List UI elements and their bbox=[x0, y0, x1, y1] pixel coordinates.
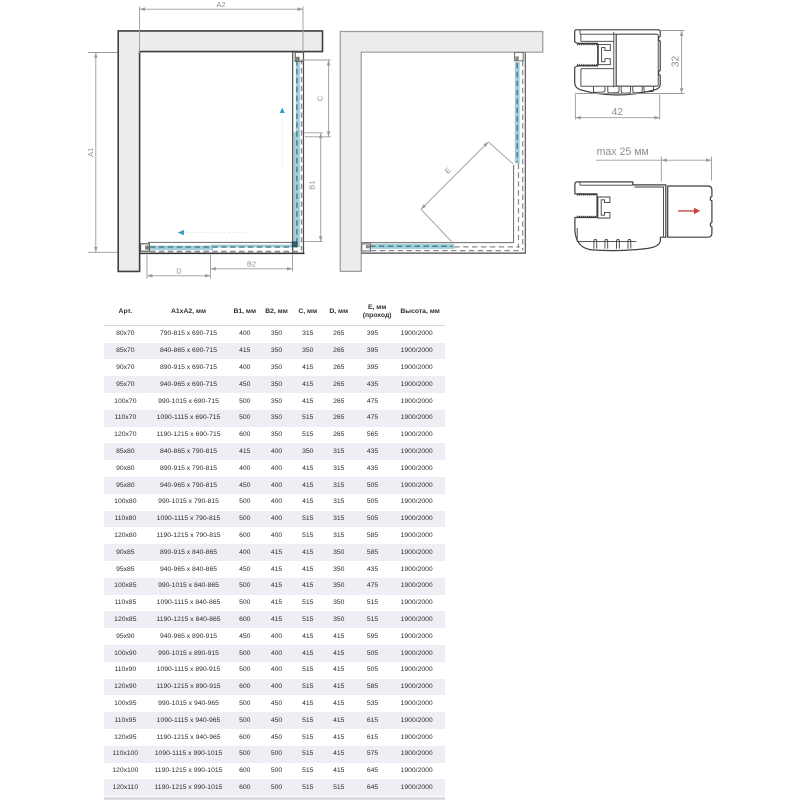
svg-text:A1: A1 bbox=[86, 148, 95, 157]
svg-text:A2: A2 bbox=[216, 0, 225, 9]
svg-text:C: C bbox=[315, 95, 324, 101]
svg-text:42: 42 bbox=[612, 107, 624, 118]
svg-text:E: E bbox=[443, 166, 453, 176]
svg-text:B2: B2 bbox=[247, 259, 256, 268]
svg-text:D: D bbox=[176, 266, 182, 275]
svg-text:B1: B1 bbox=[308, 181, 317, 190]
svg-text:max 25 мм: max 25 мм bbox=[597, 146, 649, 158]
svg-text:32: 32 bbox=[670, 56, 681, 68]
